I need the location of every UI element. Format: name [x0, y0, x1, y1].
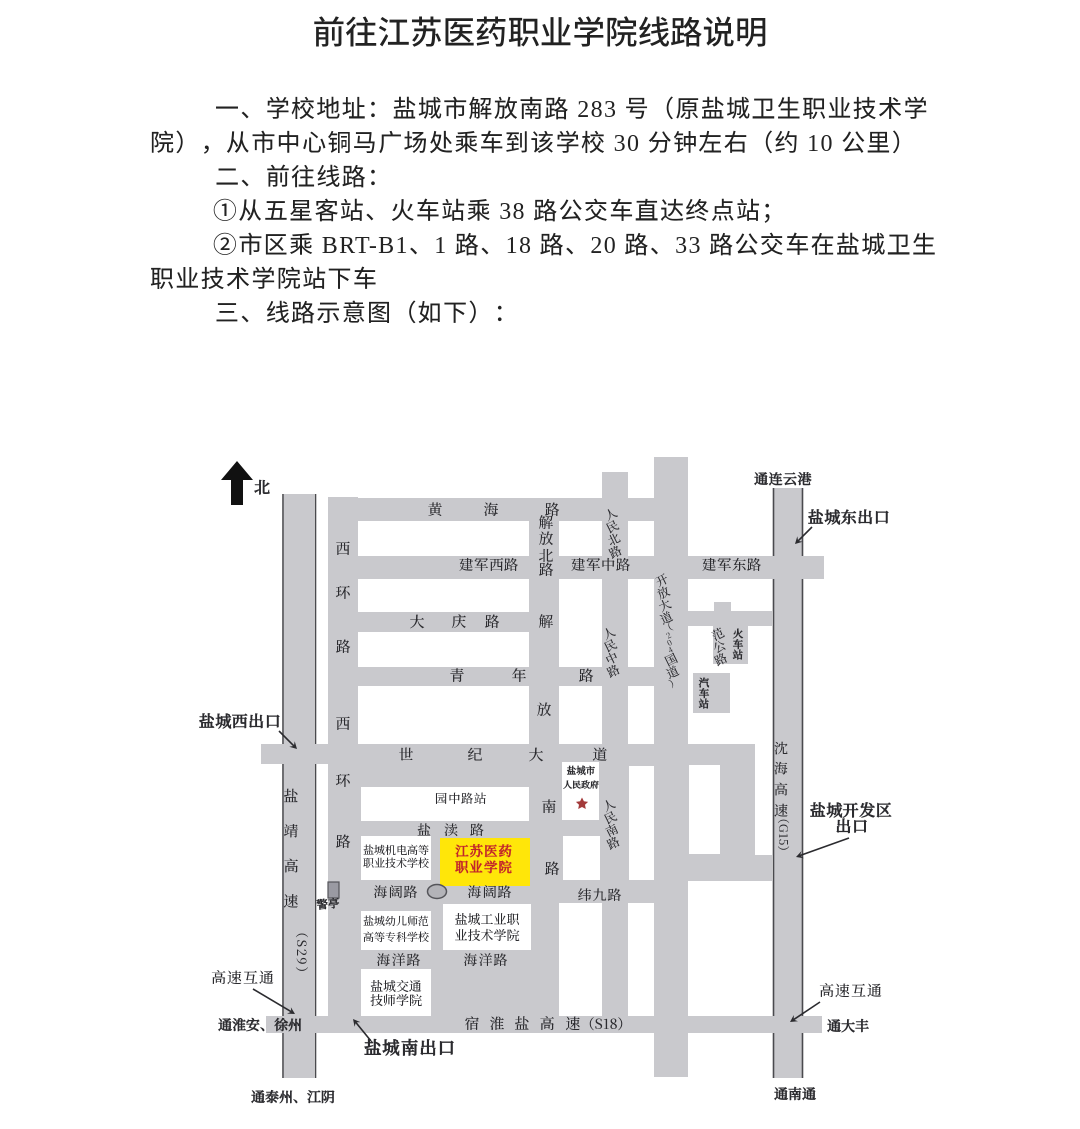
svg-text:职业技术学校: 职业技术学校	[363, 855, 429, 871]
svg-text:渎: 渎	[444, 820, 458, 840]
svg-text:西: 西	[335, 538, 350, 559]
svg-text:盐城南出口: 盐城南出口	[364, 1035, 457, 1060]
svg-text:职业学院: 职业学院	[455, 856, 513, 876]
svg-text:北: 北	[253, 475, 270, 498]
svg-text:园中路站: 园中路站	[435, 789, 487, 807]
svg-text:环: 环	[335, 770, 350, 791]
svg-text:庆: 庆	[451, 611, 466, 632]
svg-text:高: 高	[539, 1013, 554, 1034]
svg-text:技师学院: 技师学院	[369, 990, 422, 1009]
svg-text:出口: 出口	[835, 814, 868, 837]
svg-text:盐: 盐	[514, 1013, 529, 1034]
svg-text:建军东路: 建军东路	[702, 554, 762, 575]
svg-text:路: 路	[578, 665, 593, 686]
svg-text:解: 解	[538, 611, 553, 632]
svg-text:通大丰: 通大丰	[826, 1016, 869, 1036]
svg-text:放: 放	[536, 699, 551, 720]
svg-text:业技术学院: 业技术学院	[454, 925, 519, 944]
svg-text:西: 西	[335, 713, 350, 734]
svg-text:海洋路: 海洋路	[377, 950, 422, 970]
svg-text:纪: 纪	[467, 744, 482, 765]
svg-text:路: 路	[544, 858, 559, 879]
svg-text:淮: 淮	[489, 1013, 504, 1034]
svg-text:世: 世	[398, 744, 413, 765]
svg-text:路: 路	[544, 499, 559, 520]
svg-text:盐: 盐	[417, 820, 431, 840]
svg-text:建军西路: 建军西路	[459, 554, 519, 575]
svg-text:宿: 宿	[464, 1013, 479, 1034]
svg-text:路: 路	[335, 636, 350, 657]
svg-text:南: 南	[541, 796, 556, 817]
svg-text:盐城西出口: 盐城西出口	[199, 709, 282, 732]
svg-text:人民政府: 人民政府	[562, 778, 599, 791]
svg-text:盐城东出口: 盐城东出口	[808, 505, 891, 528]
svg-text:盐城市: 盐城市	[567, 763, 596, 777]
svg-text:（G15）: （G15）	[775, 812, 792, 857]
svg-text:（S29）: （S29）	[293, 925, 312, 981]
svg-text:高速互通: 高速互通	[819, 980, 883, 1001]
svg-text:纬九路: 纬九路	[578, 885, 623, 905]
svg-text:路: 路	[538, 559, 553, 580]
svg-text:黄: 黄	[427, 499, 442, 520]
svg-text:高等专科学校: 高等专科学校	[363, 929, 429, 945]
svg-text:大: 大	[409, 611, 424, 632]
svg-text:速: 速	[565, 1013, 580, 1034]
svg-text:海洋路: 海洋路	[464, 950, 509, 970]
svg-text:大: 大	[528, 744, 543, 765]
svg-text:警亭: 警亭	[315, 895, 341, 913]
svg-text:通南通: 通南通	[773, 1084, 816, 1104]
svg-text:盐靖高速: 盐靖高速	[281, 788, 302, 928]
svg-text:建军中路: 建军中路	[571, 554, 631, 575]
svg-text:（S18）: （S18）	[581, 1014, 632, 1034]
svg-text:路: 路	[470, 820, 484, 840]
svg-text:年: 年	[511, 665, 526, 686]
svg-text:海阔路: 海阔路	[374, 882, 419, 902]
svg-text:通连云港: 通连云港	[753, 469, 812, 489]
svg-text:海阔路: 海阔路	[468, 882, 513, 902]
svg-text:环: 环	[335, 582, 350, 603]
svg-text:火车站: 火车站	[731, 627, 746, 660]
svg-text:海: 海	[483, 499, 498, 520]
svg-text:汽车站: 汽车站	[697, 676, 712, 709]
svg-text:通淮安、徐州: 通淮安、徐州	[217, 1015, 302, 1035]
svg-text:道: 道	[592, 744, 607, 765]
svg-text:路: 路	[335, 831, 350, 852]
svg-text:通泰州、江阴: 通泰州、江阴	[250, 1087, 335, 1107]
svg-text:青: 青	[449, 665, 464, 686]
svg-text:盐城幼儿师范: 盐城幼儿师范	[363, 913, 429, 929]
svg-text:路: 路	[484, 611, 499, 632]
svg-text:高速互通: 高速互通	[211, 967, 275, 988]
